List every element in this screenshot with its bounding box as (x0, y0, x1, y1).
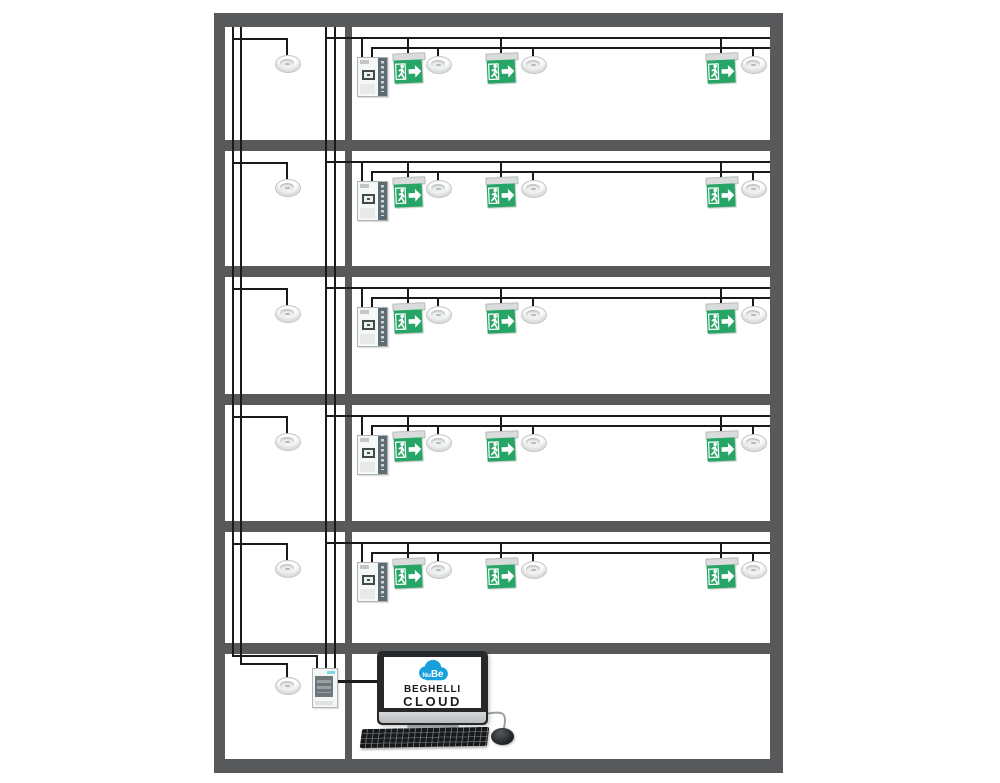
running-man-arrow-icon (706, 437, 735, 461)
downlight-lamp (531, 442, 536, 444)
panel-lower-cover (360, 589, 375, 599)
outer-wall-right (770, 13, 783, 773)
panel-display (362, 320, 375, 330)
running-man-arrow-icon (486, 309, 515, 333)
wire-segment (334, 27, 336, 669)
wire-segment (240, 27, 242, 665)
running-man-arrow-icon (393, 309, 422, 333)
monitor-chin (379, 712, 486, 723)
product-text: CLOUD (403, 695, 462, 708)
mouse (491, 728, 514, 745)
downlight-lamp (751, 569, 756, 571)
exit-sign (705, 430, 737, 463)
emergency-downlight (426, 180, 452, 198)
running-man-arrow-icon (486, 59, 515, 83)
panel-lower-cover (360, 208, 375, 218)
emergency-downlight (521, 434, 547, 452)
running-man-arrow-icon (393, 59, 422, 83)
wire-segment (286, 543, 288, 561)
emergency-downlight (275, 179, 301, 197)
panel-label (360, 565, 369, 569)
wire-segment (371, 297, 770, 299)
emergency-downlight (426, 306, 452, 324)
exit-sign (705, 302, 737, 335)
exit-sign (485, 557, 517, 590)
downlight-lamp (531, 314, 536, 316)
cabinet-module-rows (317, 680, 331, 693)
wire-segment (371, 171, 770, 173)
downlight-lamp (531, 188, 536, 190)
panel-display-text (367, 452, 370, 454)
exit-sign (392, 176, 424, 209)
downlight-lamp (751, 314, 756, 316)
wire-segment (325, 161, 770, 163)
panel-display-text (367, 74, 370, 76)
panel-label (360, 60, 369, 64)
floor-slab (225, 140, 770, 151)
downlight-lamp (436, 569, 441, 571)
panel-label (360, 310, 369, 314)
downlight-lamp (285, 63, 290, 65)
control-panel (357, 57, 388, 97)
panel-lower-cover (360, 84, 375, 94)
wire-segment (361, 287, 363, 309)
wire-segment (286, 663, 288, 678)
emergency-downlight (275, 560, 301, 578)
panel-lower-cover (360, 334, 375, 344)
wire-segment (325, 542, 770, 544)
control-panel (357, 435, 388, 475)
downlight-lamp (751, 188, 756, 190)
wire-segment (232, 27, 234, 657)
downlight-lamp (285, 685, 290, 687)
downlight-lamp (436, 64, 441, 66)
emergency-downlight (741, 306, 767, 324)
running-man-arrow-icon (486, 564, 515, 588)
emergency-downlight (741, 56, 767, 74)
outer-wall-bottom (214, 759, 783, 773)
panel-display (362, 194, 375, 204)
wire-segment (232, 655, 318, 657)
panel-display (362, 70, 375, 80)
exit-sign (705, 52, 737, 85)
wire-segment (325, 27, 327, 669)
emergency-downlight (521, 561, 547, 579)
control-panel (357, 181, 388, 221)
exit-sign (392, 557, 424, 590)
cabinet-accent-stripe (327, 671, 335, 674)
panel-label (360, 184, 369, 188)
emergency-downlight (741, 434, 767, 452)
control-panel (357, 307, 388, 347)
floor-slab (225, 643, 770, 654)
exit-sign (392, 52, 424, 85)
floor-slab (225, 266, 770, 277)
emergency-downlight (275, 433, 301, 451)
emergency-downlight (741, 180, 767, 198)
emergency-downlight (521, 56, 547, 74)
downlight-lamp (531, 569, 536, 571)
downlight-lamp (436, 188, 441, 190)
wire-segment (286, 38, 288, 56)
running-man-arrow-icon (706, 59, 735, 83)
panel-terminals (381, 566, 384, 597)
exit-sign (485, 430, 517, 463)
downlight-lamp (436, 442, 441, 444)
running-man-arrow-icon (706, 183, 735, 207)
wire-segment (361, 542, 363, 564)
panel-display-text (367, 198, 370, 200)
exit-sign (705, 557, 737, 590)
panel-label (360, 438, 369, 442)
cloud-logo: NuBe (414, 658, 452, 684)
exit-sign (485, 302, 517, 335)
emergency-downlight (426, 56, 452, 74)
floor-slab (225, 521, 770, 532)
running-man-arrow-icon (393, 437, 422, 461)
panel-display (362, 448, 375, 458)
floor-slab (225, 394, 770, 405)
keyboard (360, 727, 490, 748)
downlight-lamp (436, 314, 441, 316)
running-man-arrow-icon (706, 309, 735, 333)
panel-lower-cover (360, 462, 375, 472)
cabinet-door (315, 676, 333, 697)
outer-wall-left (214, 13, 225, 773)
emergency-downlight (741, 561, 767, 579)
panel-terminals (381, 439, 384, 470)
gateway-cabinet (312, 668, 338, 708)
emergency-downlight (275, 55, 301, 73)
emergency-downlight (521, 306, 547, 324)
panel-terminals (381, 61, 384, 92)
emergency-downlight (426, 561, 452, 579)
wire-segment (286, 416, 288, 434)
wire-segment (361, 161, 363, 183)
running-man-arrow-icon (706, 564, 735, 588)
panel-display (362, 575, 375, 585)
wire-segment (361, 415, 363, 437)
wire-segment (371, 47, 770, 49)
panel-display-text (367, 579, 370, 581)
cabinet-foot (315, 701, 333, 705)
wire-segment (371, 552, 770, 554)
wire-segment (325, 287, 770, 289)
wire-segment (361, 37, 363, 59)
building-diagram: NuBe BEGHELLI CLOUD (0, 0, 1000, 783)
downlight-lamp (285, 187, 290, 189)
exit-sign (392, 302, 424, 335)
running-man-arrow-icon (486, 437, 515, 461)
running-man-arrow-icon (486, 183, 515, 207)
control-panel (357, 562, 388, 602)
emergency-downlight (275, 677, 301, 695)
emergency-downlight (426, 434, 452, 452)
running-man-arrow-icon (393, 183, 422, 207)
wire-segment (325, 415, 770, 417)
exit-sign (705, 176, 737, 209)
downlight-lamp (285, 568, 290, 570)
outer-wall-top (214, 13, 783, 27)
monitor: NuBe BEGHELLI CLOUD (377, 651, 488, 725)
downlight-lamp (751, 442, 756, 444)
downlight-lamp (285, 441, 290, 443)
downlight-lamp (531, 64, 536, 66)
wire-segment (286, 288, 288, 306)
exit-sign (485, 176, 517, 209)
wire-segment (325, 37, 770, 39)
emergency-downlight (521, 180, 547, 198)
brand-text: BEGHELLI (404, 684, 461, 695)
downlight-lamp (285, 313, 290, 315)
emergency-downlight (275, 305, 301, 323)
wire-segment (316, 655, 318, 669)
wire-segment (338, 680, 379, 683)
wire-segment (286, 162, 288, 180)
panel-terminals (381, 185, 384, 216)
exit-sign (392, 430, 424, 463)
wire-segment (240, 663, 288, 665)
panel-display-text (367, 324, 370, 326)
panel-terminals (381, 311, 384, 342)
monitor-screen: NuBe BEGHELLI CLOUD (384, 657, 481, 708)
exit-sign (485, 52, 517, 85)
downlight-lamp (751, 64, 756, 66)
wire-segment (371, 425, 770, 427)
running-man-arrow-icon (393, 564, 422, 588)
